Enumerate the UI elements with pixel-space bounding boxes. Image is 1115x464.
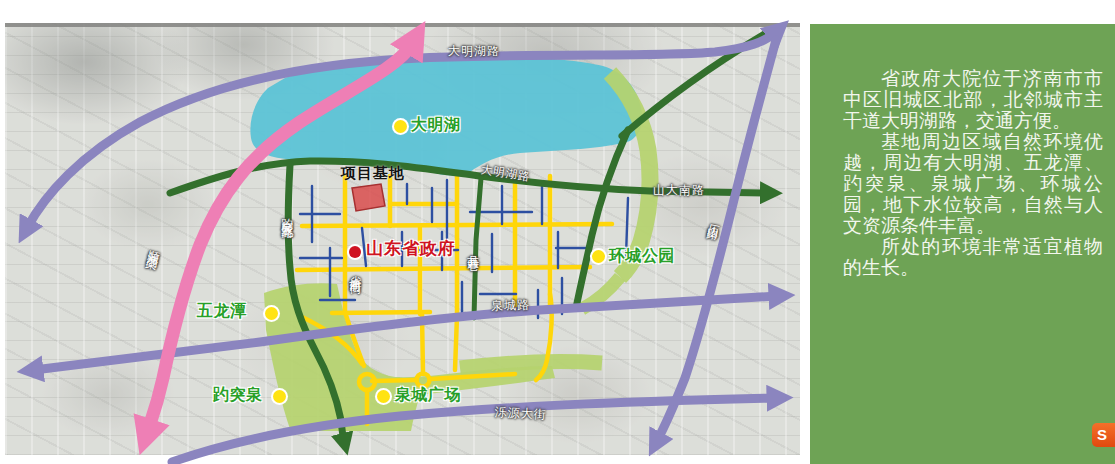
government-label: 山东省政府 <box>366 240 456 259</box>
poi-label-wulongtan: 五龙潭 <box>197 302 247 320</box>
panel-paragraph-3: 所处的环境非常适宜植物的生长。 <box>843 236 1103 278</box>
description-panel-text: 省政府大院位于济南市市中区旧城区北部，北邻城市主干道大明湖路，交通方便。 基地周… <box>810 24 1115 278</box>
poi-dot-baotu-spring <box>273 390 286 403</box>
watermark-badge: S <box>1092 423 1115 447</box>
page: { "map": { "site_label": "项目基地", "govern… <box>0 0 1115 464</box>
road-label-luoyuan: 泺源大街 <box>494 406 547 422</box>
panel-paragraph-1: 省政府大院位于济南市市中区旧城区北部，北邻城市主干道大明湖路，交通方便。 <box>843 68 1103 131</box>
poi-label-baotu-spring: 趵突泉 <box>213 386 263 404</box>
poi-dot-huancheng-park <box>592 250 605 263</box>
description-panel: 省政府大院位于济南市市中区旧城区北部，北邻城市主干道大明湖路，交通方便。 基地周… <box>810 24 1115 464</box>
poi-dot-daming-lake <box>394 120 407 133</box>
poi-dot-wulongtan <box>265 307 278 320</box>
poi-label-daming-lake: 大明湖 <box>411 116 461 134</box>
road-label-shengfu-front-street: 省府前街 <box>348 266 361 274</box>
poi-label-quancheng-square: 泉城广场 <box>395 386 461 404</box>
road-label-baotuquan-north: 趵突泉北路 <box>280 209 293 219</box>
poi-dot-quancheng-square <box>377 390 390 403</box>
government-dot <box>349 246 361 258</box>
road-label-shanda-south: 山大南路 <box>653 184 705 197</box>
road-label-xianxi-lane: 县西巷 <box>466 246 479 252</box>
road-label-daminghu-top: 大明湖路 <box>448 45 500 58</box>
road-label-quancheng: 泉城路 <box>491 299 530 314</box>
poi-label-huancheng-park: 环城公园 <box>609 247 675 265</box>
project-site-label: 项目基地 <box>341 165 405 182</box>
panel-paragraph-2: 基地周边区域自然环境优越，周边有大明湖、五龙潭、趵突泉、泉城广场、环城公园，地下… <box>843 131 1103 236</box>
